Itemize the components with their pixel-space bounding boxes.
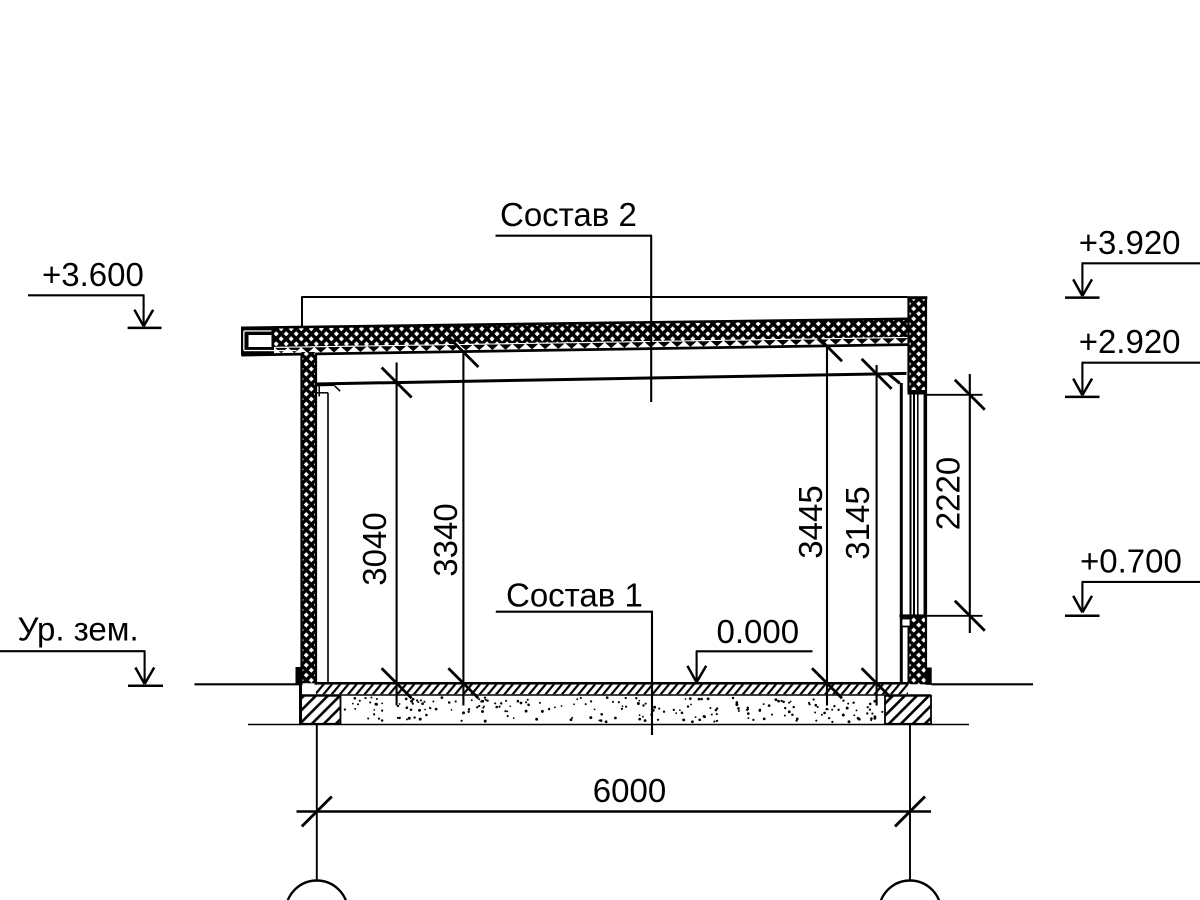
svg-text:3340: 3340 [427,503,464,576]
svg-text:Ур. зем.: Ур. зем. [18,611,139,648]
svg-text:0.000: 0.000 [717,613,800,650]
svg-text:2220: 2220 [930,457,967,530]
svg-text:Состав 1: Состав 1 [506,577,643,614]
svg-text:+2.920: +2.920 [1079,323,1181,360]
svg-text:3145: 3145 [839,486,876,559]
svg-text:+0.700: +0.700 [1080,543,1182,580]
svg-text:6000: 6000 [593,772,666,809]
svg-text:+3.600: +3.600 [42,256,144,293]
svg-text:3445: 3445 [792,485,829,558]
svg-text:Состав 2: Состав 2 [500,196,637,233]
svg-text:+3.920: +3.920 [1079,224,1181,261]
svg-text:3040: 3040 [356,512,393,585]
